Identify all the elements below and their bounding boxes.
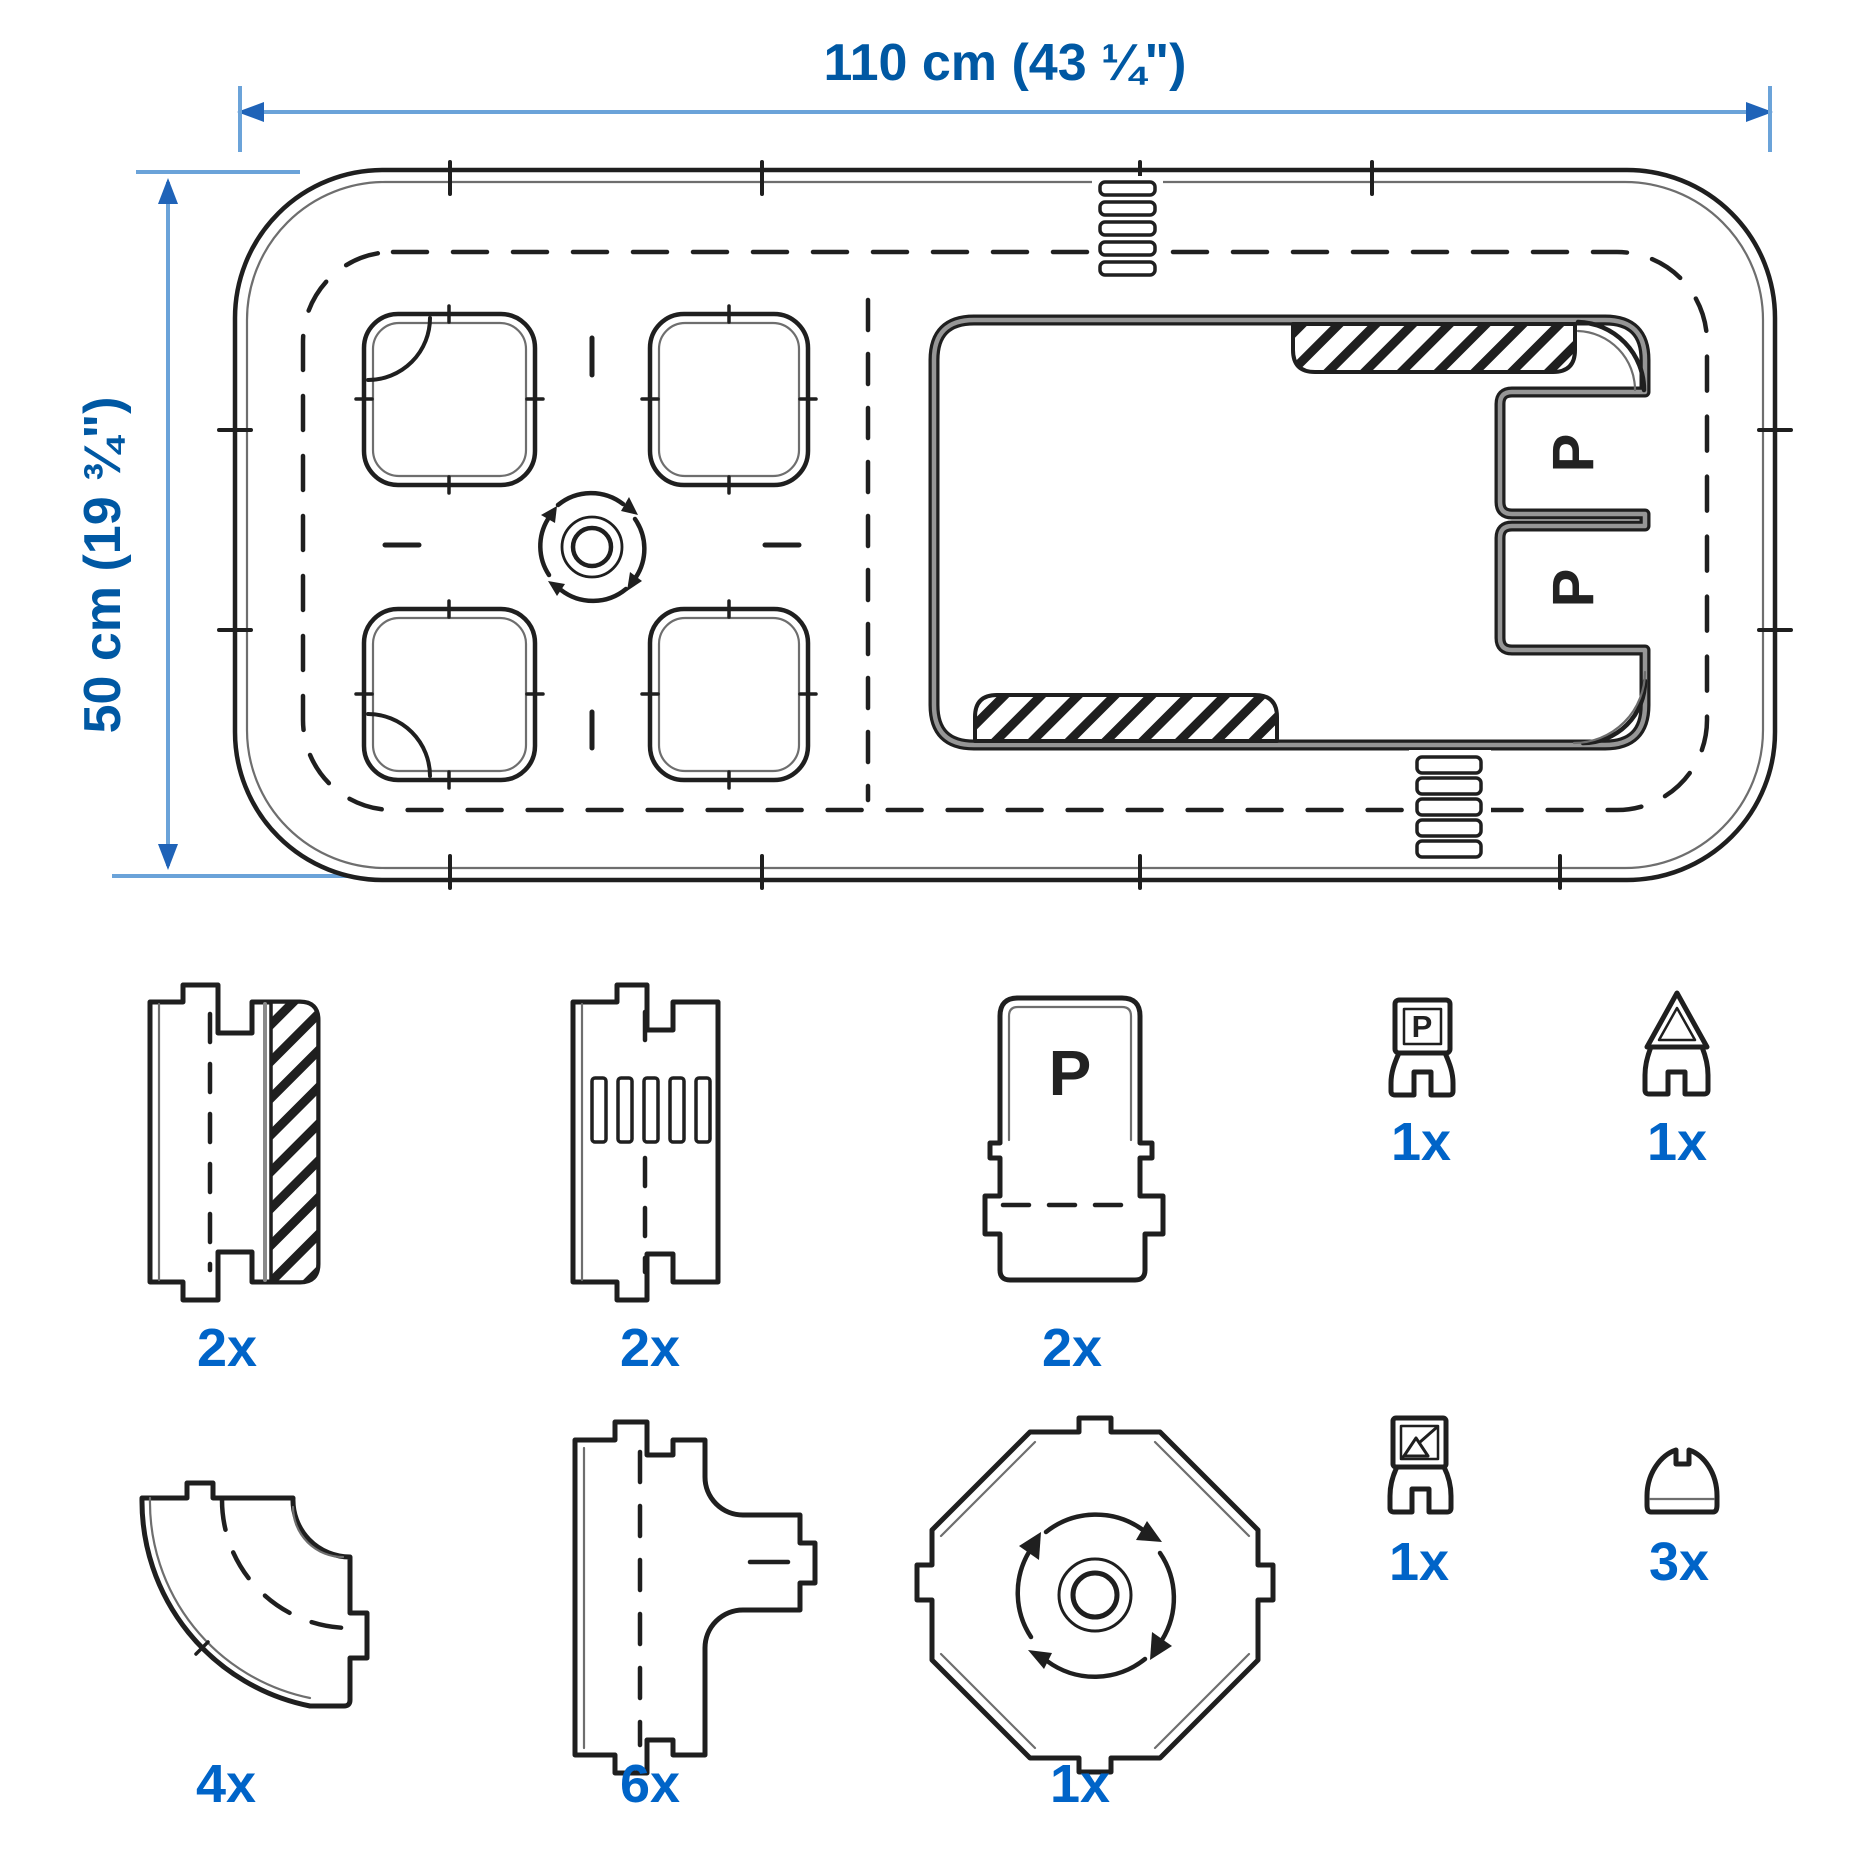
city-block-bottom-right bbox=[642, 601, 816, 788]
city-block-top-right bbox=[642, 306, 816, 493]
piece-curve: 4x bbox=[142, 1483, 367, 1814]
arrow-down-icon bbox=[158, 844, 178, 870]
top-width-dimension: 110 cm (43 ¼") bbox=[237, 34, 1773, 152]
road-playmat-dimension-diagram: 110 cm (43 ¼") 50 cm (19 ¾") bbox=[0, 0, 1860, 1860]
piece-speed-bump: 3x bbox=[1647, 1450, 1717, 1592]
piece-warning-sign: 1x bbox=[1645, 993, 1708, 1172]
piece-straight-sidewalk: 2x bbox=[150, 985, 318, 1378]
sign-base bbox=[1645, 1047, 1708, 1094]
count-straight-crosswalk: 2x bbox=[620, 1318, 680, 1378]
sign-base bbox=[1391, 1053, 1453, 1095]
piece-parking-sign: P 1x bbox=[1391, 1000, 1453, 1172]
parking-bay-letter-2: P bbox=[1541, 569, 1606, 608]
piece-parking-bay: P 2x bbox=[985, 998, 1163, 1378]
count-parking-sign: 1x bbox=[1391, 1112, 1451, 1172]
arrow-up-icon bbox=[158, 178, 178, 204]
city-block-top-left bbox=[356, 306, 543, 493]
piece-straight-crosswalk: 2x bbox=[573, 985, 718, 1378]
hatched-zone-bottom bbox=[975, 695, 1277, 741]
sign-base bbox=[1390, 1467, 1451, 1512]
parking-bay-letter-1: P bbox=[1541, 434, 1606, 473]
count-picture-sign: 1x bbox=[1389, 1532, 1449, 1592]
sign-letter: P bbox=[1412, 1009, 1433, 1044]
count-warning-sign: 1x bbox=[1647, 1112, 1707, 1172]
crosswalk-bottom bbox=[1409, 750, 1491, 862]
crosswalk-top bbox=[1092, 176, 1163, 280]
city-block-bottom-left bbox=[356, 601, 543, 788]
height-dimension-label: 50 cm (19 ¾") bbox=[74, 397, 132, 734]
sidewalk-hatch bbox=[271, 1002, 318, 1282]
count-speed-bump: 3x bbox=[1649, 1532, 1709, 1592]
count-straight-sidewalk: 2x bbox=[197, 1318, 257, 1378]
count-parking-bay: 2x bbox=[1042, 1318, 1102, 1378]
parking-letter: P bbox=[1049, 1037, 1092, 1109]
hatched-zone-top bbox=[1293, 324, 1575, 372]
count-curve: 4x bbox=[196, 1754, 256, 1814]
count-roundabout: 1x bbox=[1050, 1754, 1110, 1814]
count-t-junction: 6x bbox=[620, 1754, 680, 1814]
track-layout: P P bbox=[219, 162, 1791, 888]
piece-list: 2x 2x P 2x P bbox=[142, 985, 1717, 1814]
piece-roundabout: 1x bbox=[917, 1418, 1273, 1814]
piece-picture-sign: 1x bbox=[1389, 1418, 1451, 1592]
width-dimension-label: 110 cm (43 ¼") bbox=[824, 34, 1187, 92]
piece-t-junction: 6x bbox=[575, 1422, 815, 1814]
